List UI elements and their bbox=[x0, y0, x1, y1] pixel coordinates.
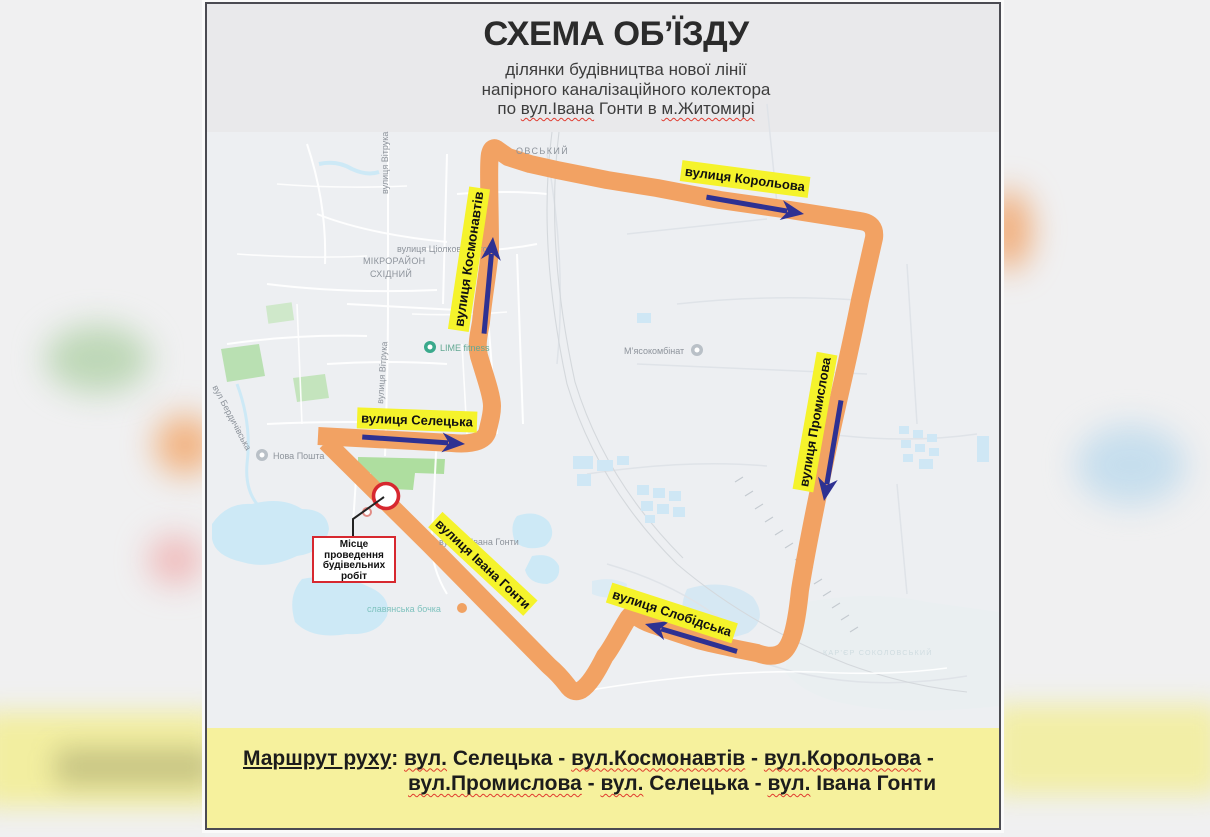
svg-text:М’ясокомбінат: М’ясокомбінат bbox=[624, 346, 684, 356]
svg-text:славянська бочка: славянська бочка bbox=[367, 604, 441, 614]
svg-text:LIME fitness: LIME fitness bbox=[440, 343, 490, 353]
svg-text:ОВСЬКИЙ: ОВСЬКИЙ bbox=[516, 145, 569, 156]
svg-text:МІКРОРАЙОН: МІКРОРАЙОН bbox=[363, 255, 425, 266]
svg-text:КАР’ЄР СОКОЛОВСЬКИЙ: КАР’ЄР СОКОЛОВСЬКИЙ bbox=[823, 648, 933, 657]
svg-text:СХІДНИЙ: СХІДНИЙ bbox=[370, 268, 412, 279]
svg-text:вулиця Вітрука: вулиця Вітрука bbox=[380, 132, 390, 194]
svg-text:Нова Пошта: Нова Пошта bbox=[273, 451, 324, 461]
